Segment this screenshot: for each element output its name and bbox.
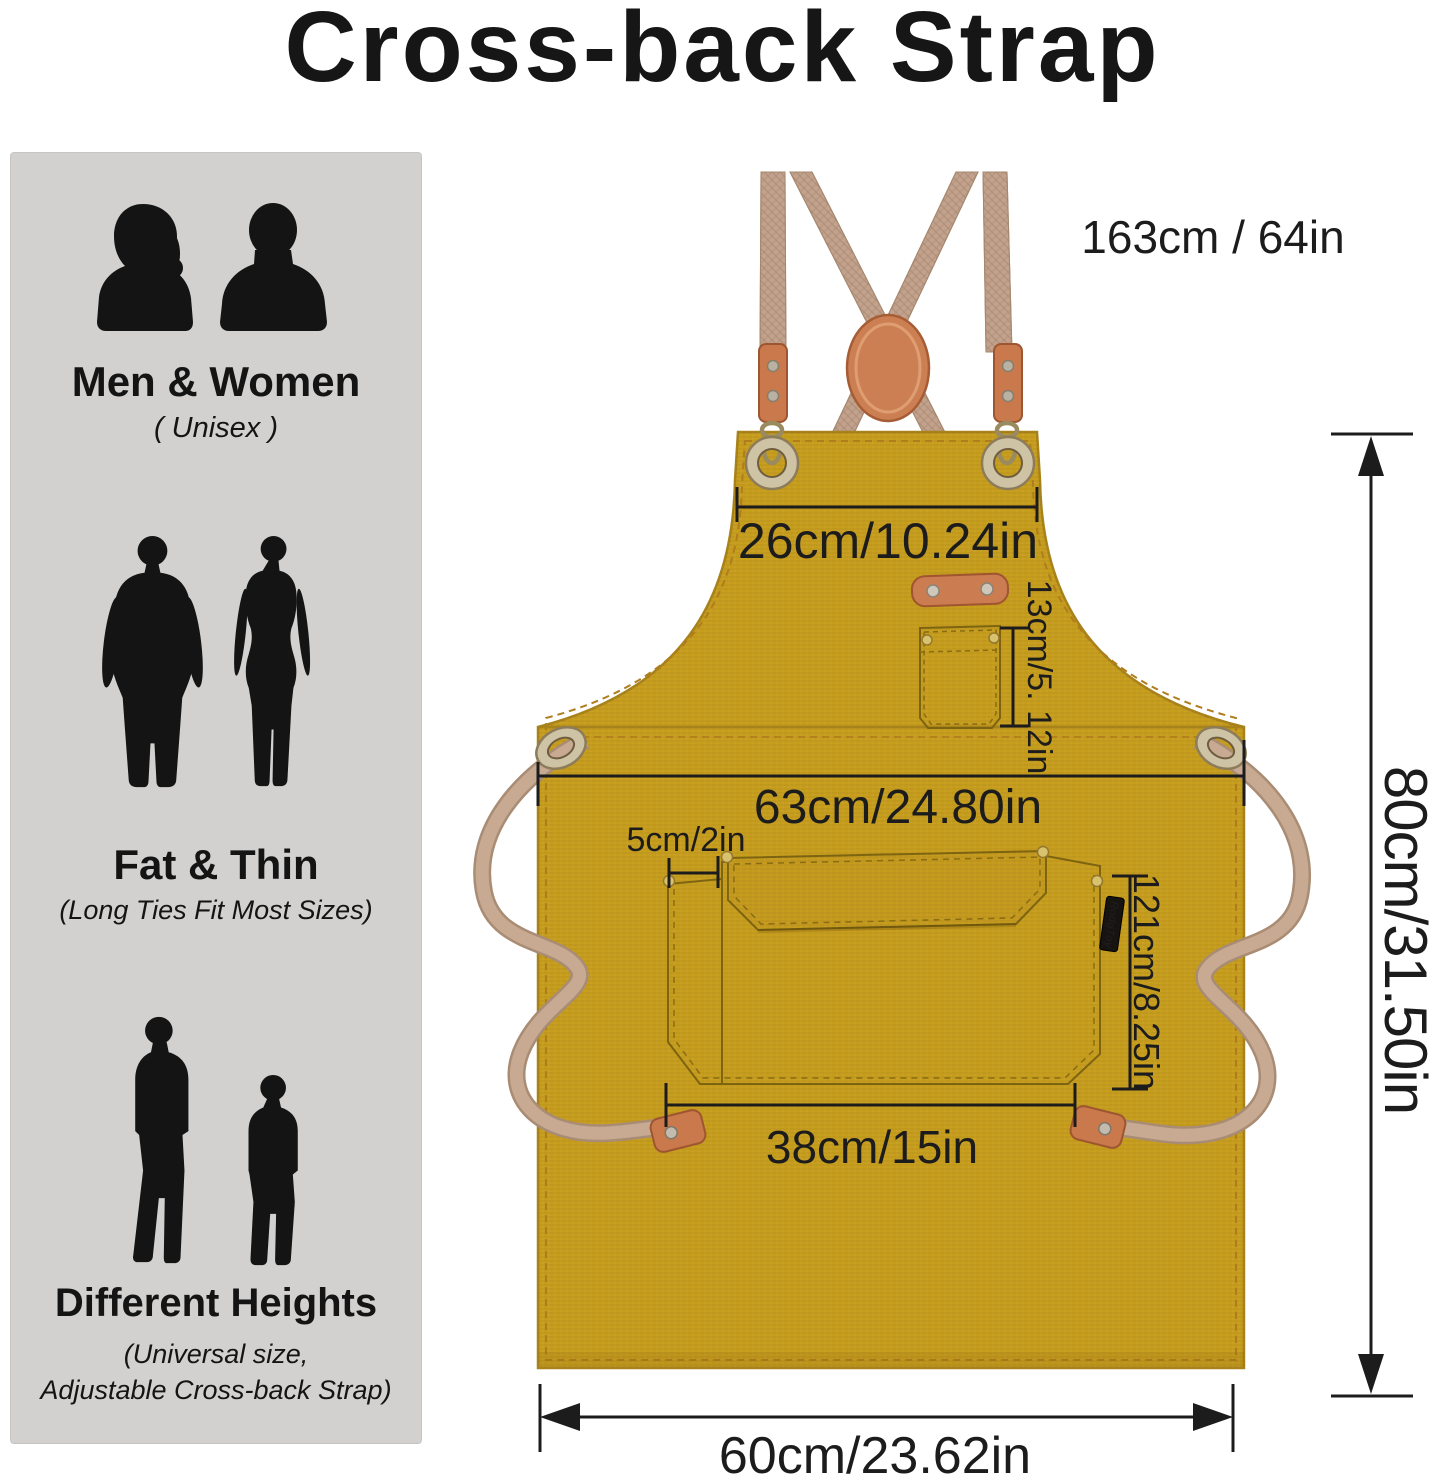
label-apron-height: 80cm/31.50in xyxy=(1372,766,1439,1114)
label-strap-length: 163cm / 64in xyxy=(1081,211,1344,263)
infographic-canvas: Cross-back Strap Men & Women ( Unisex ) xyxy=(0,0,1445,1483)
leather-back-pad xyxy=(847,315,929,421)
label-pocket-offset: 5cm/2in xyxy=(626,821,745,859)
label-waist-width: 63cm/24.80in xyxy=(754,781,1042,834)
label-bib-width: 26cm/10.24in xyxy=(738,513,1038,569)
chest-leather-patch xyxy=(912,573,1009,606)
label-bottom-width: 60cm/23.62in xyxy=(719,1427,1031,1483)
label-chest-pocket-height: 13cm/5. 12in xyxy=(1020,580,1058,775)
label-pocket-height: 121cm/8.25in xyxy=(1126,874,1167,1090)
apron-diagram: RodgToy xyxy=(0,0,1445,1483)
label-pocket-width: 38cm/15in xyxy=(766,1121,978,1173)
